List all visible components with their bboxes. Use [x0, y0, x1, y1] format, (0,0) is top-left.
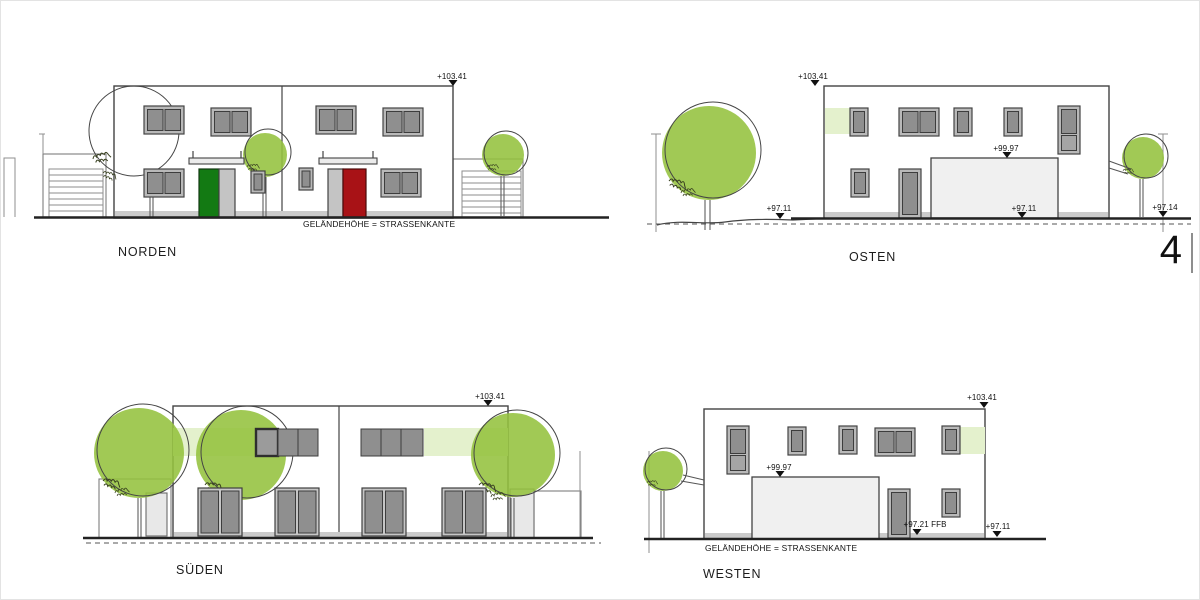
base-strip — [115, 211, 452, 217]
view-label: SÜDEN — [176, 563, 224, 577]
window — [942, 426, 960, 454]
elevation-marker: +97.14 — [1152, 203, 1178, 217]
garage-volume — [931, 158, 1058, 218]
window — [381, 429, 401, 456]
window — [839, 426, 857, 454]
elevation-drawing-sheet: +103.41 GELÄNDEHÖHE = STRASSENKANTE NORD… — [0, 0, 1200, 600]
window — [144, 169, 184, 197]
window — [875, 428, 915, 456]
elevation-value: +97.11 — [986, 522, 1011, 531]
window — [850, 108, 868, 136]
ground-note: GELÄNDEHÖHE = STRASSENKANTE — [705, 543, 857, 553]
window — [298, 429, 318, 456]
elevation-value: +103.41 — [437, 72, 467, 81]
view-label: WESTEN — [703, 567, 761, 581]
window — [299, 168, 313, 190]
elevation-marker: +103.41 — [475, 392, 505, 406]
window — [251, 171, 265, 193]
glass-panel-green — [958, 427, 985, 454]
osten-elevation: +103.41 +99.97 +97.11 +97.11 +97.14 OSTE… — [647, 72, 1192, 273]
patio-door — [442, 488, 486, 536]
entry-door-red — [328, 169, 366, 217]
elevation-value: +97.14 — [1152, 203, 1178, 212]
window-tall — [1058, 106, 1080, 154]
blueprint-canvas: +103.41 GELÄNDEHÖHE = STRASSENKANTE NORD… — [1, 1, 1200, 600]
window — [1004, 108, 1022, 136]
elevation-value: +97.11 — [1012, 204, 1037, 213]
neighbour-wall — [4, 158, 15, 217]
sheet-number: 4 — [1160, 228, 1182, 272]
window — [144, 106, 184, 134]
elevation-value: +103.41 — [967, 393, 997, 402]
elevation-value: +99.97 — [766, 463, 792, 472]
view-label: OSTEN — [849, 250, 896, 264]
window — [383, 108, 423, 136]
window — [381, 169, 421, 197]
glass-panel-green — [825, 108, 850, 134]
window — [954, 108, 972, 136]
elevation-value: +97.11 — [767, 204, 792, 213]
elevation-value: +97.21 FFB — [903, 520, 946, 529]
garage-left — [39, 134, 106, 217]
window — [278, 429, 298, 456]
norden-elevation: +103.41 GELÄNDEHÖHE = STRASSENKANTE NORD… — [4, 72, 609, 259]
westen-elevation: +103.41 +99.97 +97.21 FFB +97.11 GELÄNDE… — [643, 393, 1046, 581]
boundary-line — [651, 134, 661, 232]
elevation-value: +99.97 — [993, 144, 1019, 153]
patio-door — [275, 488, 319, 536]
patio-door — [198, 488, 242, 536]
elevation-marker: +103.41 — [798, 72, 828, 86]
door — [888, 489, 910, 538]
entry-door-green — [199, 169, 235, 217]
elevation-marker: +97.11 — [986, 522, 1011, 537]
window — [788, 427, 806, 455]
ground-note: GELÄNDEHÖHE = STRASSENKANTE — [303, 219, 455, 229]
elevation-marker: +103.41 — [437, 72, 467, 86]
window — [361, 429, 381, 456]
annex-door — [146, 493, 167, 536]
sueden-elevation: +103.41 SÜDEN — [83, 392, 601, 577]
window-tall — [727, 426, 749, 474]
window — [316, 106, 356, 134]
window — [851, 169, 869, 197]
window — [899, 108, 939, 136]
door — [899, 169, 921, 218]
garage-volume — [752, 477, 879, 539]
elevation-value: +103.41 — [798, 72, 828, 81]
elevation-marker: +103.41 — [967, 393, 997, 408]
view-label: NORDEN — [118, 245, 177, 259]
window-sash — [256, 429, 278, 456]
tree — [662, 102, 761, 230]
window — [401, 429, 423, 456]
window — [942, 489, 960, 517]
patio-door — [362, 488, 406, 536]
elevation-value: +103.41 — [475, 392, 505, 401]
elevation-marker: +97.11 — [767, 204, 792, 219]
tree — [643, 448, 704, 539]
window — [211, 108, 251, 136]
